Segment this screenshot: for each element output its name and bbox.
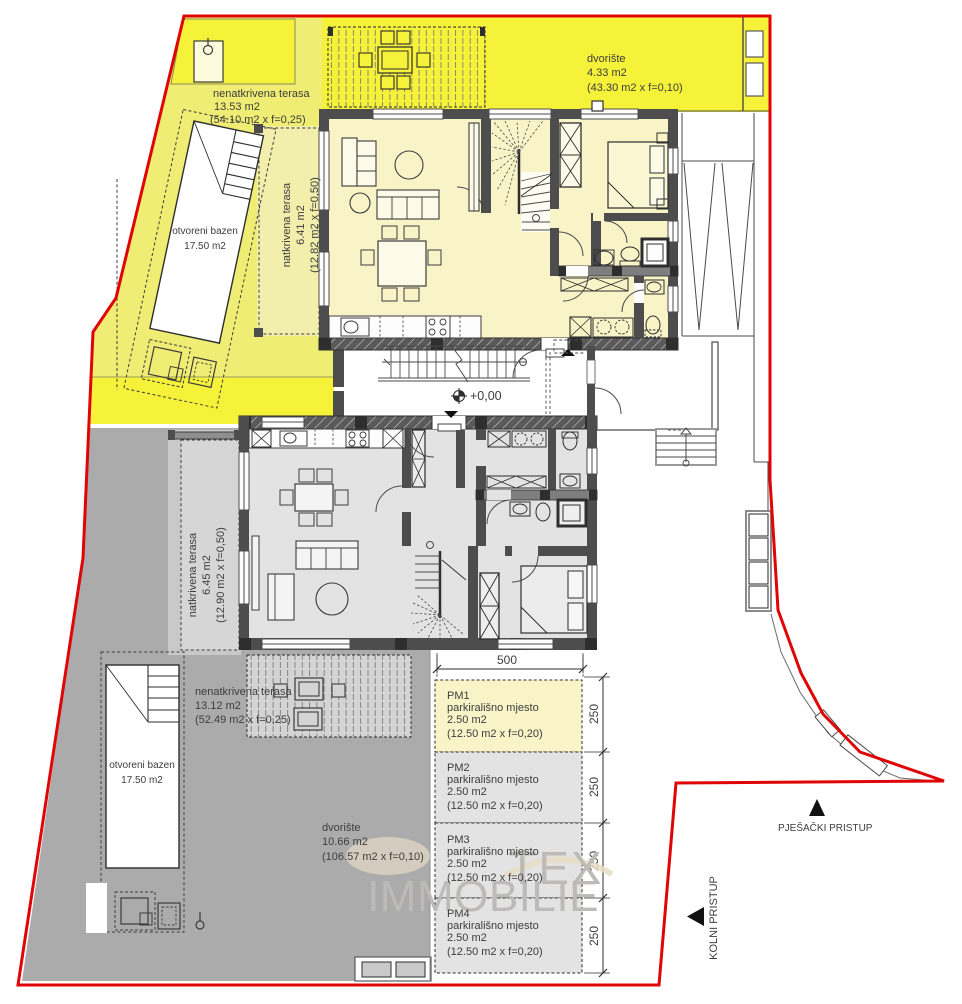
svg-text:parkirališno mjesto: parkirališno mjesto [447, 702, 539, 714]
svg-text:(12.50 m2 x f=0,20): (12.50 m2 x f=0,20) [447, 728, 543, 740]
svg-text:parkirališno mjesto: parkirališno mjesto [447, 846, 539, 858]
svg-text:KOLNI PRISTUP: KOLNI PRISTUP [708, 876, 720, 960]
svg-text:13.53 m2: 13.53 m2 [214, 101, 260, 113]
svg-text:(12.50 m2 x f=0,20): (12.50 m2 x f=0,20) [447, 946, 543, 958]
svg-text:parkirališno mjesto: parkirališno mjesto [447, 920, 539, 932]
svg-text:(12.90 m2 x f=0,50): (12.90 m2 x f=0,50) [215, 527, 227, 623]
svg-text:natkrivena terasa: natkrivena terasa [281, 182, 293, 267]
svg-text:2.50 m2: 2.50 m2 [447, 858, 487, 870]
svg-text:2.50 m2: 2.50 m2 [447, 786, 487, 798]
svg-text:PM1: PM1 [447, 690, 470, 702]
svg-text:500: 500 [497, 653, 517, 667]
svg-text:PM4: PM4 [447, 908, 470, 920]
svg-text:(52.49 m2 x f=0,25): (52.49 m2 x f=0,25) [195, 714, 291, 726]
svg-text:2.50 m2: 2.50 m2 [447, 932, 487, 944]
svg-text:10.66 m2: 10.66 m2 [322, 836, 368, 848]
svg-text:6.45 m2: 6.45 m2 [201, 555, 213, 595]
svg-text:(12.82 m2 x f=0,50): (12.82 m2 x f=0,50) [309, 177, 321, 273]
svg-text:(54.10 m2 x f=0,25): (54.10 m2 x f=0,25) [210, 114, 306, 126]
svg-text:nenatkrivena terasa: nenatkrivena terasa [213, 88, 310, 100]
svg-text:250: 250 [587, 777, 601, 797]
svg-text:dvorište: dvorište [322, 822, 361, 834]
svg-text:250: 250 [587, 926, 601, 946]
svg-text:PJEŠAČKI PRISTUP: PJEŠAČKI PRISTUP [778, 821, 873, 834]
svg-text:(43.30 m2 x f=0,10): (43.30 m2 x f=0,10) [587, 82, 683, 94]
svg-text:4.33 m2: 4.33 m2 [587, 67, 627, 79]
svg-text:PM2: PM2 [447, 762, 470, 774]
svg-text:parkirališno mjesto: parkirališno mjesto [447, 774, 539, 786]
svg-text:(12.50 m2 x f=0,20): (12.50 m2 x f=0,20) [447, 800, 543, 812]
svg-text:17.50 m2: 17.50 m2 [184, 241, 226, 252]
svg-text:natkrivena terasa: natkrivena terasa [187, 532, 199, 617]
svg-text:+0,00: +0,00 [470, 389, 502, 403]
svg-text:PM3: PM3 [447, 834, 470, 846]
svg-text:6.41 m2: 6.41 m2 [295, 205, 307, 245]
svg-text:2.50 m2: 2.50 m2 [447, 714, 487, 726]
svg-text:17.50 m2: 17.50 m2 [121, 775, 163, 786]
svg-text:(106.57 m2 x f=0,10): (106.57 m2 x f=0,10) [322, 851, 424, 863]
svg-text:otvoreni bazen: otvoreni bazen [172, 226, 238, 237]
svg-text:otvoreni bazen: otvoreni bazen [109, 760, 175, 771]
svg-text:13.12 m2: 13.12 m2 [195, 700, 241, 712]
svg-text:dvorište: dvorište [587, 53, 626, 65]
svg-text:nenatkrivena terasa: nenatkrivena terasa [195, 686, 292, 698]
svg-text:(12.50 m2 x f=0,20): (12.50 m2 x f=0,20) [447, 872, 543, 884]
svg-text:250: 250 [587, 704, 601, 724]
